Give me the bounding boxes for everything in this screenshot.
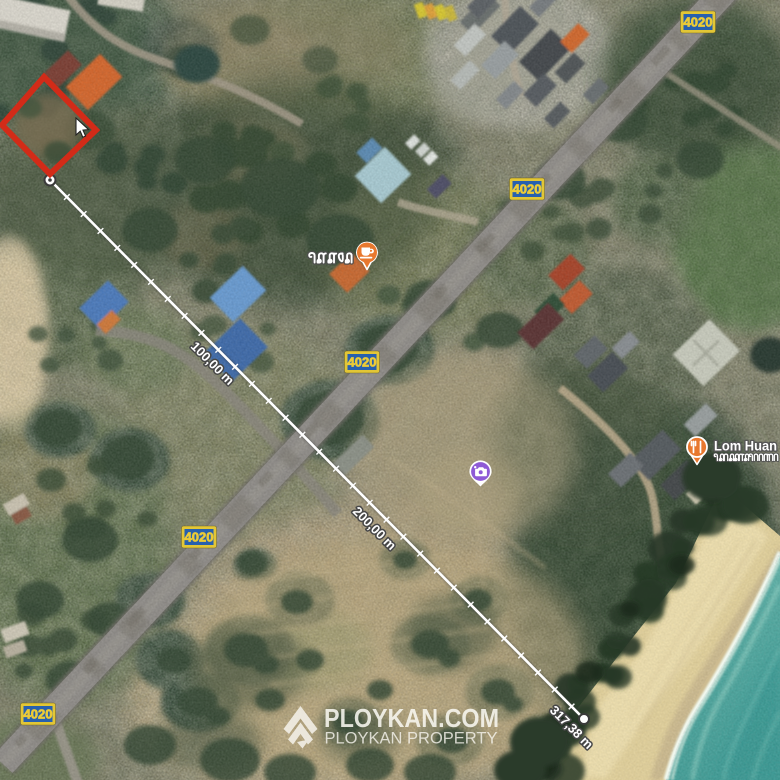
svg-text:4020: 4020 [24, 707, 53, 722]
svg-text:4020: 4020 [684, 15, 713, 30]
svg-text:PLOYKAN PROPERTY: PLOYKAN PROPERTY [325, 729, 498, 748]
svg-text:4020: 4020 [348, 355, 377, 370]
svg-text:4020: 4020 [185, 530, 214, 545]
svg-text:4020: 4020 [513, 182, 542, 197]
svg-text:Lom Huan: Lom Huan [714, 439, 777, 454]
